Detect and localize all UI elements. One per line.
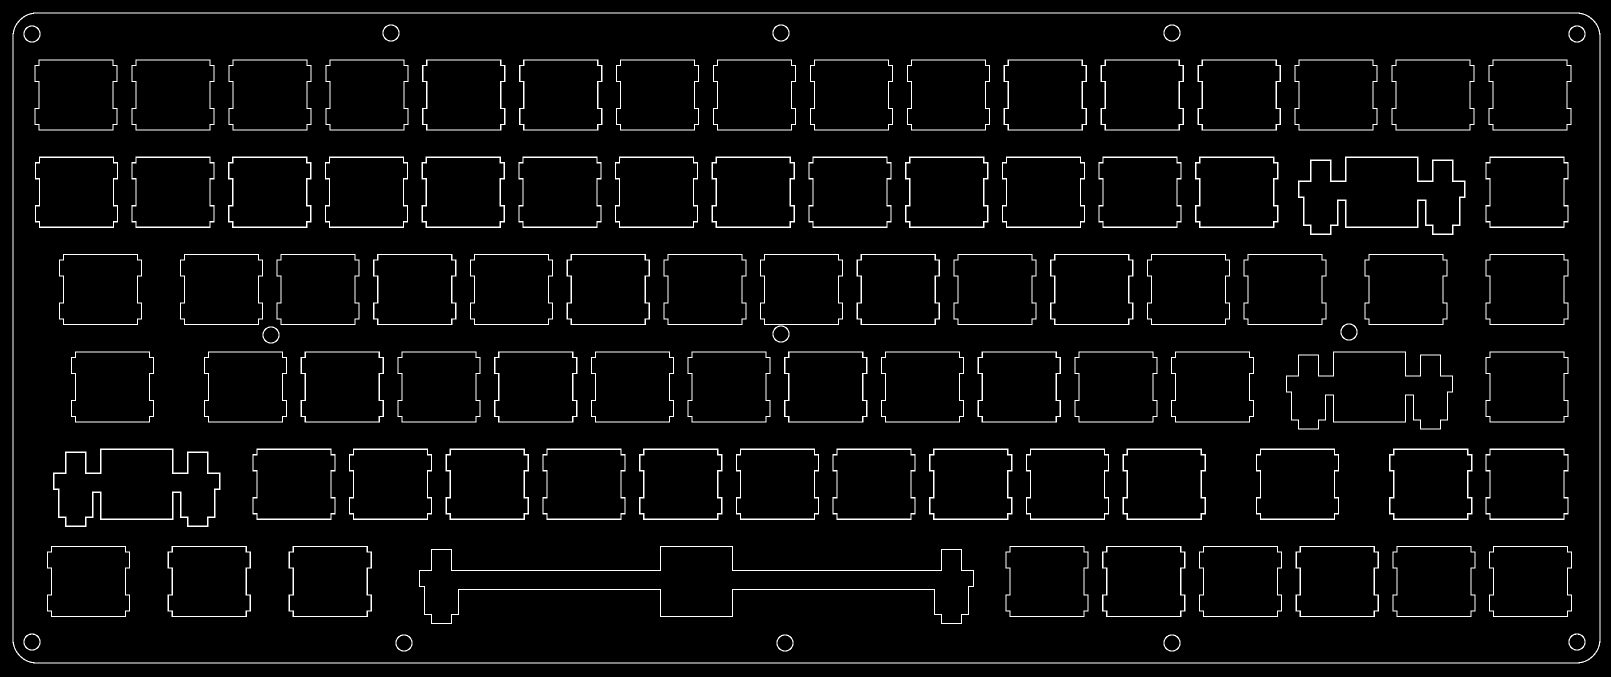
switch-cutout xyxy=(60,255,142,325)
switch-cutout xyxy=(1390,449,1472,519)
switch-cutout xyxy=(374,255,456,325)
switch-cutout xyxy=(180,255,262,325)
switch-cutout xyxy=(640,449,722,519)
switch-cutout xyxy=(205,352,287,422)
switch-cutout xyxy=(495,352,577,422)
screw-hole xyxy=(1164,635,1180,651)
switch-cutout xyxy=(809,157,891,227)
switch-cutout xyxy=(350,449,432,519)
switch-cutout xyxy=(882,352,964,422)
switch-cutout xyxy=(132,157,214,227)
switch-cutout xyxy=(277,255,359,325)
switch-cutout xyxy=(326,60,408,130)
switch-cutout xyxy=(35,157,117,227)
screw-hole xyxy=(24,26,40,42)
cad-viewport xyxy=(0,0,1611,677)
switch-cutout xyxy=(591,352,673,422)
switch-cutout xyxy=(301,352,383,422)
stabilized-switch-cutout xyxy=(1287,352,1453,429)
switch-cutout xyxy=(761,255,843,325)
stabilized-switch-cutout xyxy=(1299,157,1465,234)
switch-cutout xyxy=(1486,255,1568,325)
switch-cutout xyxy=(567,255,649,325)
switch-cutout xyxy=(1027,449,1109,519)
switch-cutout xyxy=(1002,157,1084,227)
switch-cutout xyxy=(289,547,371,617)
switch-cutout xyxy=(907,60,989,130)
switch-cutout xyxy=(1101,60,1183,130)
switch-cutout xyxy=(35,60,117,130)
switch-cutout xyxy=(857,255,939,325)
switch-cutout xyxy=(1256,449,1338,519)
switch-cutout xyxy=(1172,352,1254,422)
switch-cutout xyxy=(398,352,480,422)
switch-cutout xyxy=(423,60,505,130)
switch-cutout xyxy=(446,449,528,519)
screw-hole xyxy=(1164,25,1180,41)
switch-cutout xyxy=(1103,547,1185,617)
screw-hole xyxy=(1341,324,1357,340)
switch-cutout xyxy=(168,547,250,617)
switch-cutout xyxy=(253,449,335,519)
switch-cutout xyxy=(736,449,818,519)
switch-cutout xyxy=(1147,255,1229,325)
screw-hole xyxy=(773,25,789,41)
switch-cutout xyxy=(471,255,553,325)
switch-cutout xyxy=(1075,352,1157,422)
switch-cutout xyxy=(1296,547,1378,617)
switch-cutout xyxy=(1006,547,1088,617)
switch-cutout xyxy=(543,449,625,519)
switch-cutout xyxy=(1486,157,1568,227)
switch-cutout xyxy=(229,60,311,130)
switch-cutout xyxy=(1486,352,1568,422)
screw-hole xyxy=(773,326,789,342)
switch-cutout xyxy=(712,157,794,227)
switch-cutout xyxy=(326,157,408,227)
screw-hole xyxy=(263,327,279,343)
switch-cutout xyxy=(1489,60,1571,130)
switch-cutout xyxy=(1244,255,1326,325)
switch-cutout xyxy=(714,60,796,130)
spacebar-stabilized-cutout xyxy=(419,547,973,624)
switch-cutout xyxy=(688,352,770,422)
switch-cutout xyxy=(616,157,698,227)
switch-cutout xyxy=(1051,255,1133,325)
switch-cutout xyxy=(229,157,311,227)
switch-cutout xyxy=(978,352,1060,422)
switch-cutout xyxy=(1004,60,1086,130)
screw-hole xyxy=(24,634,40,650)
switch-cutout xyxy=(422,157,504,227)
keyboard-plate-drawing xyxy=(0,0,1611,677)
switch-cutout xyxy=(1123,449,1205,519)
switch-cutout xyxy=(1099,157,1181,227)
switch-cutout xyxy=(833,449,915,519)
switch-cutout xyxy=(1196,157,1278,227)
switch-cutout xyxy=(1200,547,1282,617)
screw-hole xyxy=(1569,634,1585,650)
screw-hole xyxy=(777,635,793,651)
switch-cutout xyxy=(520,60,602,130)
switch-cutout xyxy=(664,255,746,325)
switch-cutout xyxy=(519,157,601,227)
switch-cutout xyxy=(47,547,129,617)
screw-hole xyxy=(1569,26,1585,42)
switch-cutout xyxy=(785,352,867,422)
switch-cutout xyxy=(1392,60,1474,130)
switch-cutout xyxy=(906,157,988,227)
switch-cutout xyxy=(1393,547,1475,617)
switch-cutout xyxy=(930,449,1012,519)
switch-cutout xyxy=(1365,255,1447,325)
switch-cutout xyxy=(1486,449,1568,519)
switch-cutout xyxy=(1198,60,1280,130)
screw-hole xyxy=(383,25,399,41)
stabilized-switch-cutout xyxy=(54,449,220,526)
switch-cutout xyxy=(811,60,893,130)
switch-cutout xyxy=(132,60,214,130)
switch-cutout xyxy=(617,60,699,130)
switch-cutout xyxy=(1490,547,1572,617)
screw-hole xyxy=(396,635,412,651)
switch-cutout xyxy=(1295,60,1377,130)
plate-outline xyxy=(13,13,1600,663)
switch-cutout xyxy=(72,352,154,422)
switch-cutout xyxy=(954,255,1036,325)
